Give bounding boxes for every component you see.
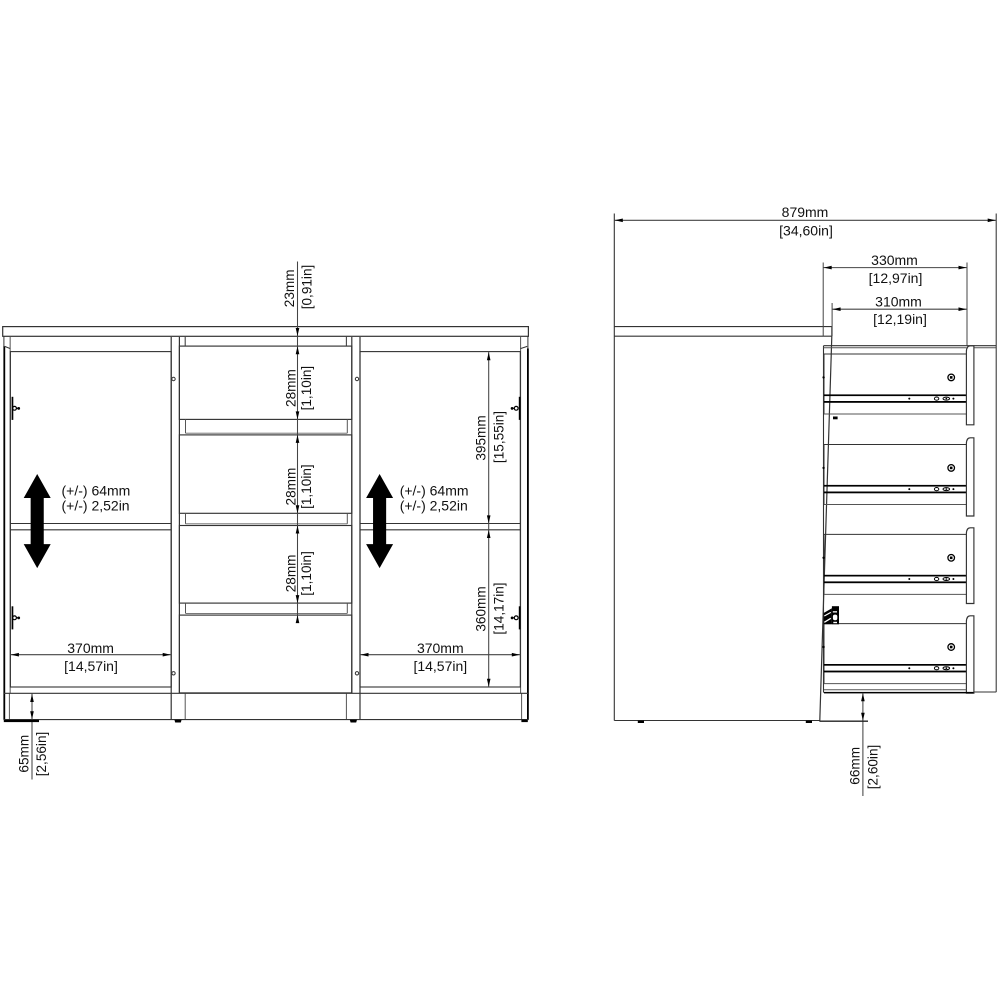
svg-text:[0,91in]: [0,91in] (299, 265, 314, 310)
svg-text:(+/-) 64mm: (+/-) 64mm (62, 482, 131, 498)
svg-text:[14,57in]: [14,57in] (413, 658, 467, 674)
svg-text:[15,55in]: [15,55in] (492, 411, 507, 463)
svg-text:28mm: 28mm (284, 468, 299, 506)
svg-text:[12,97in]: [12,97in] (869, 270, 923, 286)
svg-text:[1,10in]: [1,10in] (299, 366, 314, 411)
svg-text:310mm: 310mm (875, 293, 922, 309)
svg-text:(+/-) 64mm: (+/-) 64mm (400, 482, 469, 498)
svg-text:395mm: 395mm (474, 415, 489, 460)
svg-text:[1,10in]: [1,10in] (299, 551, 314, 596)
svg-text:(+/-) 2,52in: (+/-) 2,52in (62, 498, 130, 514)
svg-text:[2,60in]: [2,60in] (866, 745, 881, 790)
svg-text:879mm: 879mm (782, 204, 829, 220)
svg-text:[1,10in]: [1,10in] (299, 464, 314, 509)
svg-text:(+/-) 2,52in: (+/-) 2,52in (400, 498, 468, 514)
svg-text:[14,57in]: [14,57in] (64, 658, 118, 674)
svg-text:[14,17in]: [14,17in] (492, 582, 507, 634)
svg-text:28mm: 28mm (284, 369, 299, 407)
svg-text:370mm: 370mm (67, 640, 114, 656)
svg-text:360mm: 360mm (473, 586, 488, 631)
svg-text:66mm: 66mm (848, 747, 863, 785)
svg-text:[2,56in]: [2,56in] (34, 732, 49, 777)
svg-text:[12,19in]: [12,19in] (873, 311, 927, 327)
svg-text:65mm: 65mm (17, 735, 32, 773)
svg-text:28mm: 28mm (284, 555, 299, 593)
svg-text:370mm: 370mm (417, 640, 464, 656)
svg-text:330mm: 330mm (871, 252, 918, 268)
svg-text:[34,60in]: [34,60in] (779, 223, 833, 239)
svg-text:23mm: 23mm (282, 269, 297, 307)
